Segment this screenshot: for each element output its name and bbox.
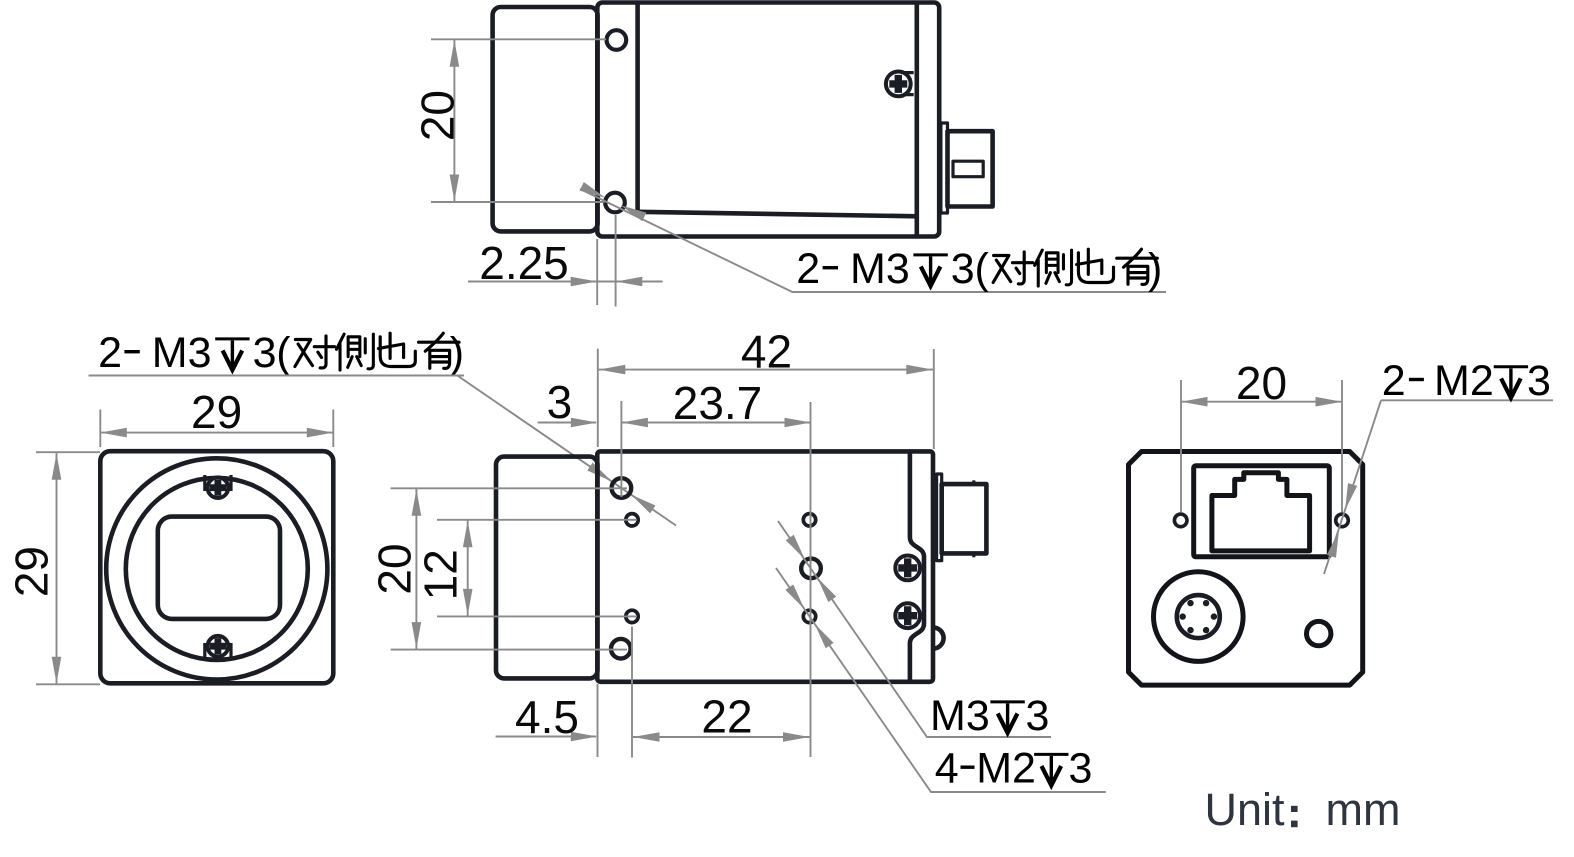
- svg-text:mm: mm: [1326, 784, 1401, 835]
- svg-text:20: 20: [412, 90, 464, 141]
- svg-text:2: 2: [98, 329, 122, 377]
- svg-text:3: 3: [253, 329, 277, 377]
- svg-text:): ): [1148, 245, 1162, 293]
- svg-text:42: 42: [741, 326, 792, 378]
- svg-text:23.7: 23.7: [673, 377, 763, 429]
- svg-text:4.5: 4.5: [515, 691, 579, 743]
- svg-text:(: (: [276, 329, 291, 377]
- svg-text:22: 22: [701, 691, 752, 743]
- svg-text:2: 2: [1382, 357, 1406, 405]
- svg-text:M2: M2: [976, 745, 1036, 793]
- svg-text:3: 3: [951, 245, 975, 293]
- svg-text:): ): [450, 329, 464, 377]
- svg-text:M2: M2: [1434, 357, 1494, 405]
- svg-text:29: 29: [191, 386, 242, 438]
- svg-text:(: (: [975, 245, 990, 293]
- svg-text:12: 12: [415, 549, 467, 600]
- svg-text:M3: M3: [930, 692, 990, 740]
- svg-text:4: 4: [935, 745, 959, 793]
- svg-text:20: 20: [369, 543, 421, 594]
- svg-text:29: 29: [6, 546, 58, 597]
- svg-text:3: 3: [1026, 692, 1050, 740]
- svg-text:M3: M3: [152, 329, 212, 377]
- svg-text:M3: M3: [850, 245, 910, 293]
- svg-text:Unit: Unit: [1205, 784, 1286, 835]
- svg-text:20: 20: [1236, 357, 1287, 409]
- svg-text:2: 2: [796, 245, 820, 293]
- svg-text:3: 3: [547, 376, 573, 428]
- svg-text:3: 3: [1069, 745, 1093, 793]
- svg-text:2.25: 2.25: [479, 237, 569, 289]
- svg-text:3: 3: [1527, 357, 1551, 405]
